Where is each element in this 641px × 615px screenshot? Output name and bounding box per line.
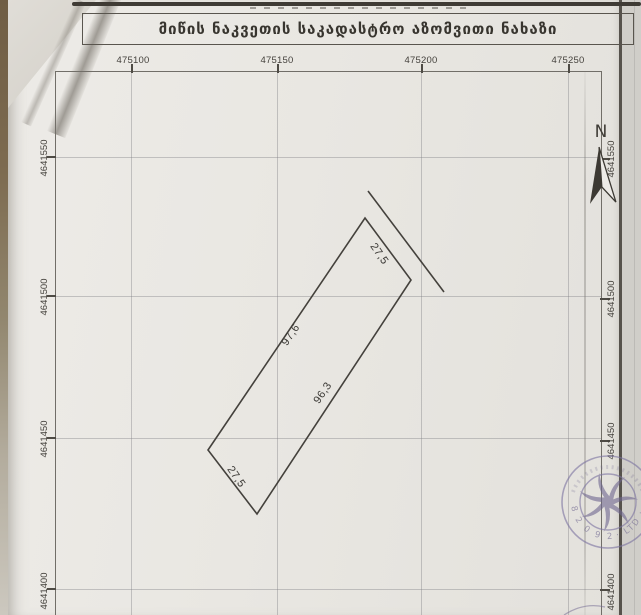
tick-top-2 xyxy=(277,64,279,73)
gridline-horizontal-2 xyxy=(56,296,601,297)
gridline-horizontal-3 xyxy=(56,438,601,439)
northing-label-right-3: 4641450 xyxy=(606,411,618,471)
tick-top-4 xyxy=(568,64,570,73)
northing-label-right-4: 4641400 xyxy=(606,562,618,615)
easting-label-1: 475100 xyxy=(103,55,163,66)
gridline-horizontal-1 xyxy=(56,157,601,158)
map-frame xyxy=(55,71,602,615)
page-top-edge xyxy=(72,2,641,6)
scanner-left-edge xyxy=(0,0,8,615)
northing-label-left-4: 4641400 xyxy=(39,561,51,615)
gridline-horizontal-4 xyxy=(56,589,601,590)
northing-label-left-1: 4641550 xyxy=(39,128,51,188)
scanner-right-margin-line xyxy=(634,0,635,615)
page-title: მიწის ნაკვეთის საკადასტრო აზომვითი ნახაზ… xyxy=(83,14,633,44)
title-box: მიწის ნაკვეთის საკადასტრო აზომვითი ნახაზ… xyxy=(82,13,634,45)
scanner-right-margin xyxy=(622,0,641,615)
gridline-vertical-1 xyxy=(131,72,132,615)
page-right-edge xyxy=(619,0,622,615)
northing-label-right-2: 4641500 xyxy=(606,269,618,329)
gridline-vertical-3 xyxy=(421,72,422,615)
northing-label-left-2: 4641500 xyxy=(39,267,51,327)
tick-top-3 xyxy=(421,64,423,73)
page-top-crease-marks xyxy=(250,7,470,9)
paper-crease-line xyxy=(584,71,586,615)
scanned-cadastral-sheet: მიწის ნაკვეთის საკადასტრო აზომვითი ნახაზ… xyxy=(0,0,641,615)
north-label: N xyxy=(584,122,618,142)
gridline-vertical-4 xyxy=(568,72,569,615)
northing-label-left-3: 4641450 xyxy=(39,409,51,469)
tick-top-1 xyxy=(131,64,133,73)
